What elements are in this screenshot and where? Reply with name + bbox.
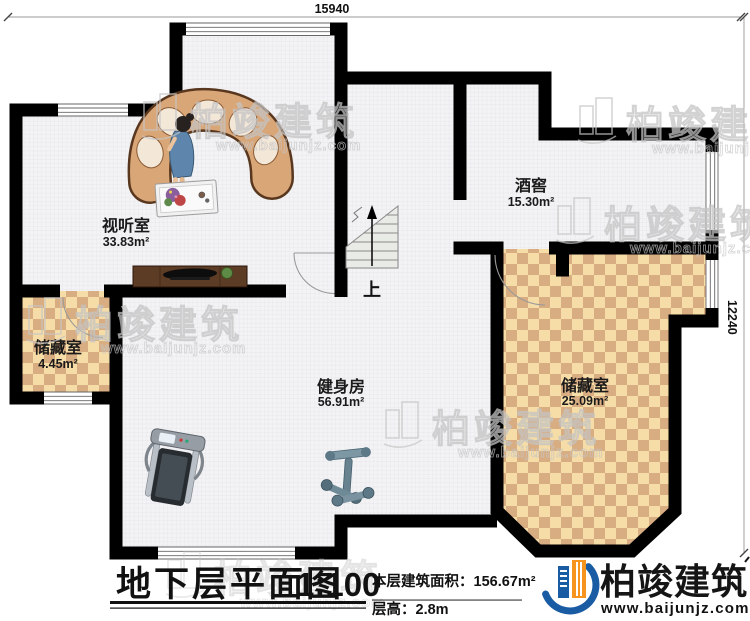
building-area-label: 本层建筑面积：156.67m² bbox=[372, 572, 536, 590]
window-storage-small-bottom bbox=[44, 392, 92, 405]
dimension-top: 15940 bbox=[315, 2, 350, 16]
gym-area: 56.91m² bbox=[318, 395, 365, 409]
dimension-right: 12240 bbox=[725, 300, 739, 335]
wine-cellar-label: 酒窖 bbox=[515, 176, 547, 195]
storage-large-label: 储藏室 bbox=[560, 376, 609, 395]
watermark-url: www.baijunjz.com bbox=[215, 137, 361, 154]
brand-url: www.baijunjz.com bbox=[600, 600, 750, 617]
watermark-url: www.baijunjz.com bbox=[629, 240, 750, 257]
storage-large-area: 25.09m² bbox=[562, 394, 609, 408]
wall-stub bbox=[556, 255, 569, 277]
title-underline-thin bbox=[110, 608, 366, 609]
media-room-label: 视听室 bbox=[102, 216, 150, 235]
floor-height-label: 层高：2.8m bbox=[372, 600, 449, 618]
watermark-url: www.baijunjz.com bbox=[457, 444, 603, 461]
window-media-top bbox=[58, 104, 128, 117]
coffee-table bbox=[155, 180, 218, 217]
plan-scale: 1:100 bbox=[296, 566, 380, 603]
watermark-url: www.baijunjz.com bbox=[100, 340, 246, 357]
floor-plan-drawing: 视听室 33.83m² 酒窖 15.30m² 储藏室 4.45m² 健身房 56… bbox=[0, 0, 750, 621]
brand-name: 柏竣建筑 bbox=[600, 561, 748, 602]
brand-logo-icon bbox=[546, 560, 596, 611]
window-gym-bottom bbox=[158, 547, 295, 560]
title-underline bbox=[110, 601, 366, 604]
title-divider bbox=[372, 600, 522, 601]
window-bay-top bbox=[186, 23, 330, 36]
gym-label: 健身房 bbox=[317, 377, 365, 396]
tv-cabinet bbox=[133, 266, 247, 287]
wine-cellar-area: 15.30m² bbox=[508, 195, 555, 209]
floor-plan-page: 视听室 33.83m² 酒窖 15.30m² 储藏室 4.45m² 健身房 56… bbox=[0, 0, 750, 621]
storage-small-area: 4.45m² bbox=[38, 357, 78, 371]
media-room-area: 33.83m² bbox=[103, 235, 150, 249]
window-storage-large-right bbox=[706, 260, 719, 308]
watermark-url: www.baijunjz.com bbox=[651, 140, 750, 157]
stairs-up-label: 上 bbox=[363, 280, 381, 300]
brand-logo: 柏竣建筑 www.baijunjz.com bbox=[546, 557, 750, 617]
